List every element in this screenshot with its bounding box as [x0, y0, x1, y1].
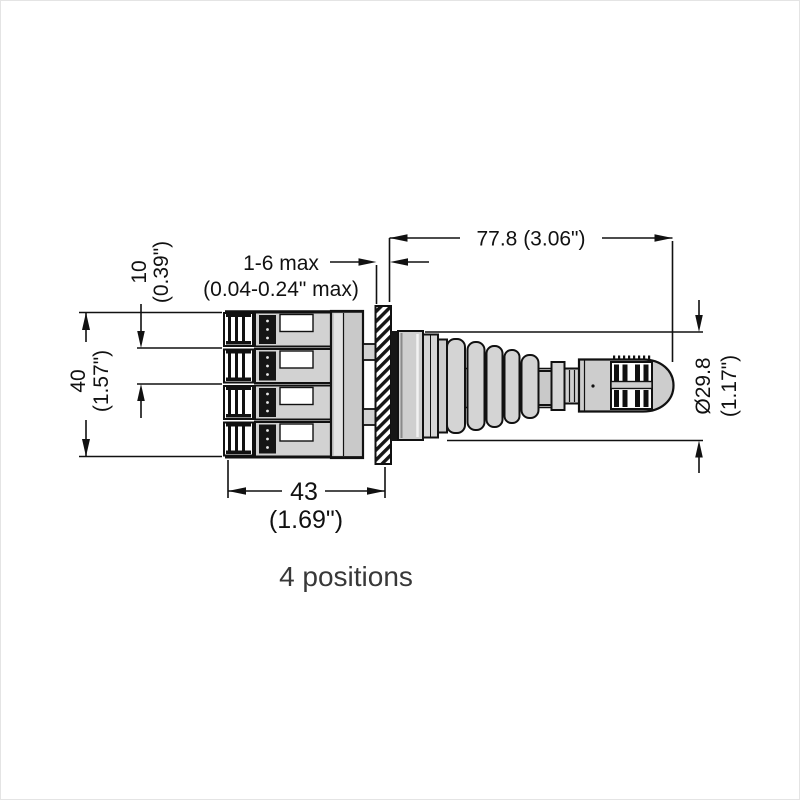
handle-disc: [552, 362, 565, 410]
mounting-panel: [376, 306, 399, 464]
knob-dot: [591, 384, 594, 387]
lock-washer: [391, 331, 398, 441]
block-mounting-slab: [331, 311, 363, 458]
rubber-boot-bellows: [447, 339, 552, 433]
dim-width-label: 43: [290, 478, 318, 506]
contact-block: [224, 311, 376, 458]
panel-tab-top: [363, 344, 376, 360]
panel-tab-bottom: [363, 409, 376, 425]
drawing-canvas: 77.8 (3.06") 1-6 max (0.04-0.24" max) 10…: [0, 0, 800, 800]
dim-height-label: 40(1.57"): [67, 350, 113, 412]
knob-grip-ridges: [611, 362, 652, 409]
joystick-knob: [579, 356, 674, 412]
dimension-contact-pitch: [137, 304, 222, 418]
contact-module-3: [224, 386, 331, 420]
dim-length-label: 77.8 (3.06"): [476, 228, 585, 251]
dim-width-inch-label: (1.69"): [269, 506, 343, 534]
joystick: [398, 331, 674, 440]
collar-ring-small: [438, 340, 447, 433]
contact-module-1: [224, 313, 331, 347]
handle-spool: [565, 369, 580, 404]
handle-shaft: [539, 371, 552, 405]
dim-pitch-label: 10(0.39"): [128, 241, 173, 303]
dim-panel-range-label: 1-6 max: [243, 252, 319, 275]
positions-caption: 4 positions: [279, 561, 413, 592]
dim-diameter-label: Ø29.8(1.17"): [692, 355, 741, 417]
boot-collar: [398, 331, 423, 440]
contact-module-2: [224, 349, 331, 383]
contact-module-4: [224, 422, 331, 457]
technical-drawing: 77.8 (3.06") 1-6 max (0.04-0.24" max) 10…: [1, 1, 800, 801]
dim-panel-range-inch-label: (0.04-0.24" max): [203, 278, 359, 301]
